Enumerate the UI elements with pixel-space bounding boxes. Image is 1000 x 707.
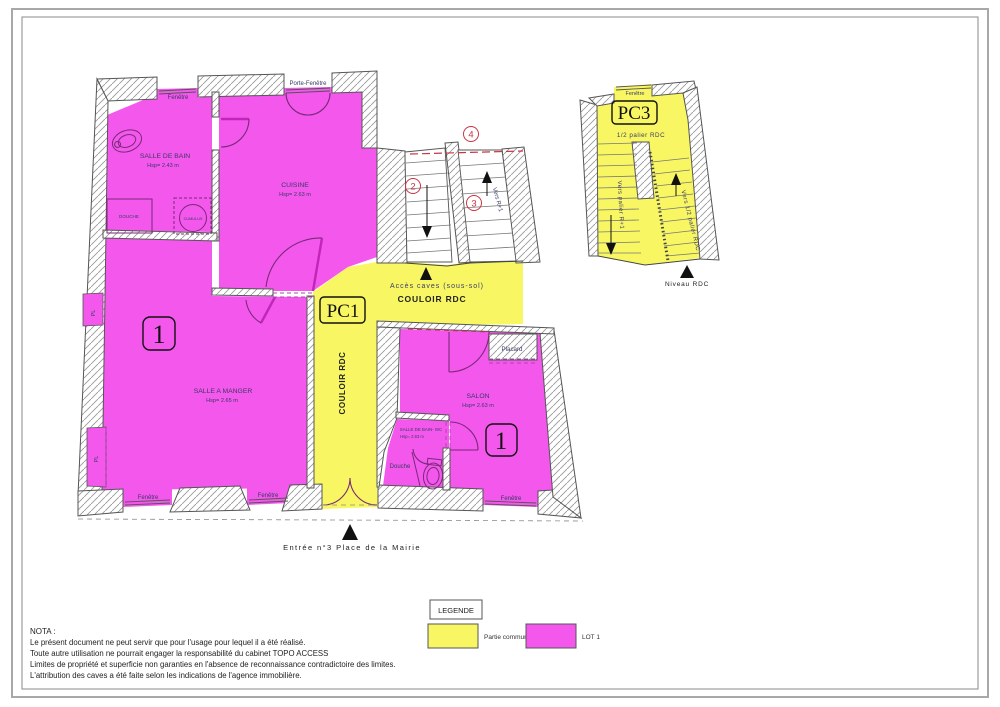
acces-caves-label: Accès caves (sous-sol) [390,283,484,290]
room-label: SALLE A MANGER [194,388,253,395]
nota-line: L'attribution des caves a été faite selo… [30,671,302,680]
couloir-label: COULOIR RDC [398,294,467,304]
window-label: Fenêtre [168,95,189,101]
pc3-demi-palier-label: 1/2 palier RDC [617,132,665,139]
wall [212,92,219,117]
legend-swatch-common [428,624,478,648]
pc1-label: PC1 [327,301,360,322]
room-height: Hsp= 2.65 m [206,398,238,404]
room-label: SALLE DE BAIN [140,153,190,160]
wall [212,288,273,296]
nota-block: NOTA : Le présent document ne peut servi… [30,627,396,680]
lot1-number: 1 [495,428,508,455]
lot1-number: 1 [153,320,166,349]
marker-2: 2 [410,182,415,193]
pl-closet [83,293,103,326]
floorplan-svg: 2 3 4 1 1 PC1 PC3 Fenêtre Porte-Fenêtre … [0,0,1000,707]
niveau-rdc-arrow [680,265,694,278]
room-height: Hsp= 2.63 m [400,434,424,439]
nota-line: Toute autre utilisation ne pourrait enga… [30,649,328,658]
room-height: Hsp= 2.63 m [462,403,494,409]
marker-3: 3 [471,199,476,210]
room-label: CUISINE [281,182,309,189]
wall [198,74,284,97]
marker-4: 4 [468,130,473,141]
wall [170,486,250,512]
wall [443,448,450,490]
shower-label: Douche [390,464,411,470]
water-heater-label: CUMULUS [184,217,203,221]
legend-title: LEGENDE [438,606,474,615]
window-label: Porte-Fenêtre [289,81,327,87]
entrance-arrow [342,524,358,540]
legend: LEGENDE Partie commune LOT 1 [428,600,600,648]
room-salle-de-bain [100,88,212,232]
placard-label: Placard [502,346,524,353]
nota-line: Limites de propriété et superficie non g… [30,660,396,669]
room-label: SALON [466,393,489,400]
entrance-label: Entrée n°3 Place de la Mairie [283,543,421,552]
pl-label: PL [91,310,97,317]
pc3-window-label: Fenêtre [626,91,645,97]
wall [377,148,407,263]
pc3-label: PC3 [618,103,651,124]
stair-left-flight [405,148,452,262]
nota-line: Le présent document ne peut servir que p… [30,638,305,647]
wall [307,296,314,488]
window-label: Fenêtre [138,495,159,501]
pl-label: PL [94,456,100,463]
legend-label-common: Partie commune [484,634,532,641]
niveau-rdc-label: Niveau RDC [665,281,709,288]
wall [78,489,123,516]
nota-title: NOTA : [30,627,56,636]
room-cuisine [219,87,377,291]
outer-dashed-line [78,519,583,521]
legend-label-lot1: LOT 1 [582,634,600,641]
room-height: Hsp= 2.43 m [147,163,179,169]
window-label: Fenêtre [258,493,279,499]
shower-label: DOUCHE [119,214,139,219]
legend-swatch-lot1 [526,624,576,648]
wall [580,100,598,256]
floorplan-page: 2 3 4 1 1 PC1 PC3 Fenêtre Porte-Fenêtre … [0,0,1000,707]
window-label: Fenêtre [501,496,522,502]
couloir-label: COULOIR RDC [338,351,347,414]
room-height: Hsp= 2.63 m [279,192,311,198]
room-label: SALLE DE BAIN- WC [400,427,442,432]
wall [212,150,219,241]
